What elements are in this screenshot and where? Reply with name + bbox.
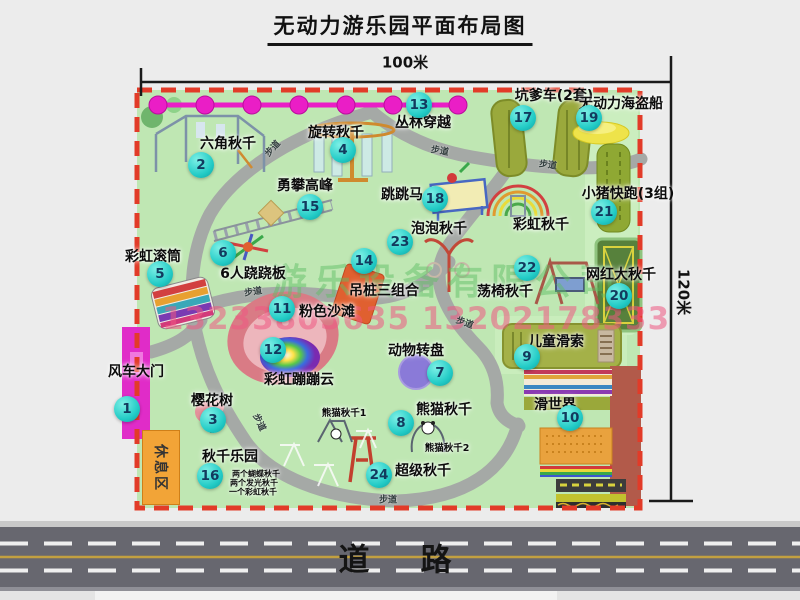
road (0, 521, 800, 600)
watermark-phone: 13233805635 13202178333 (162, 301, 670, 337)
watermark-company: 游乐设备有限公司 (271, 253, 623, 305)
park-layout-map: 游乐设备有限公司 13233805635 13202178333 无动力游乐园平… (0, 0, 800, 600)
pirate-ship-icon (573, 122, 629, 144)
animal-turntable-icon (399, 355, 433, 389)
pig-run-icon (597, 144, 630, 232)
